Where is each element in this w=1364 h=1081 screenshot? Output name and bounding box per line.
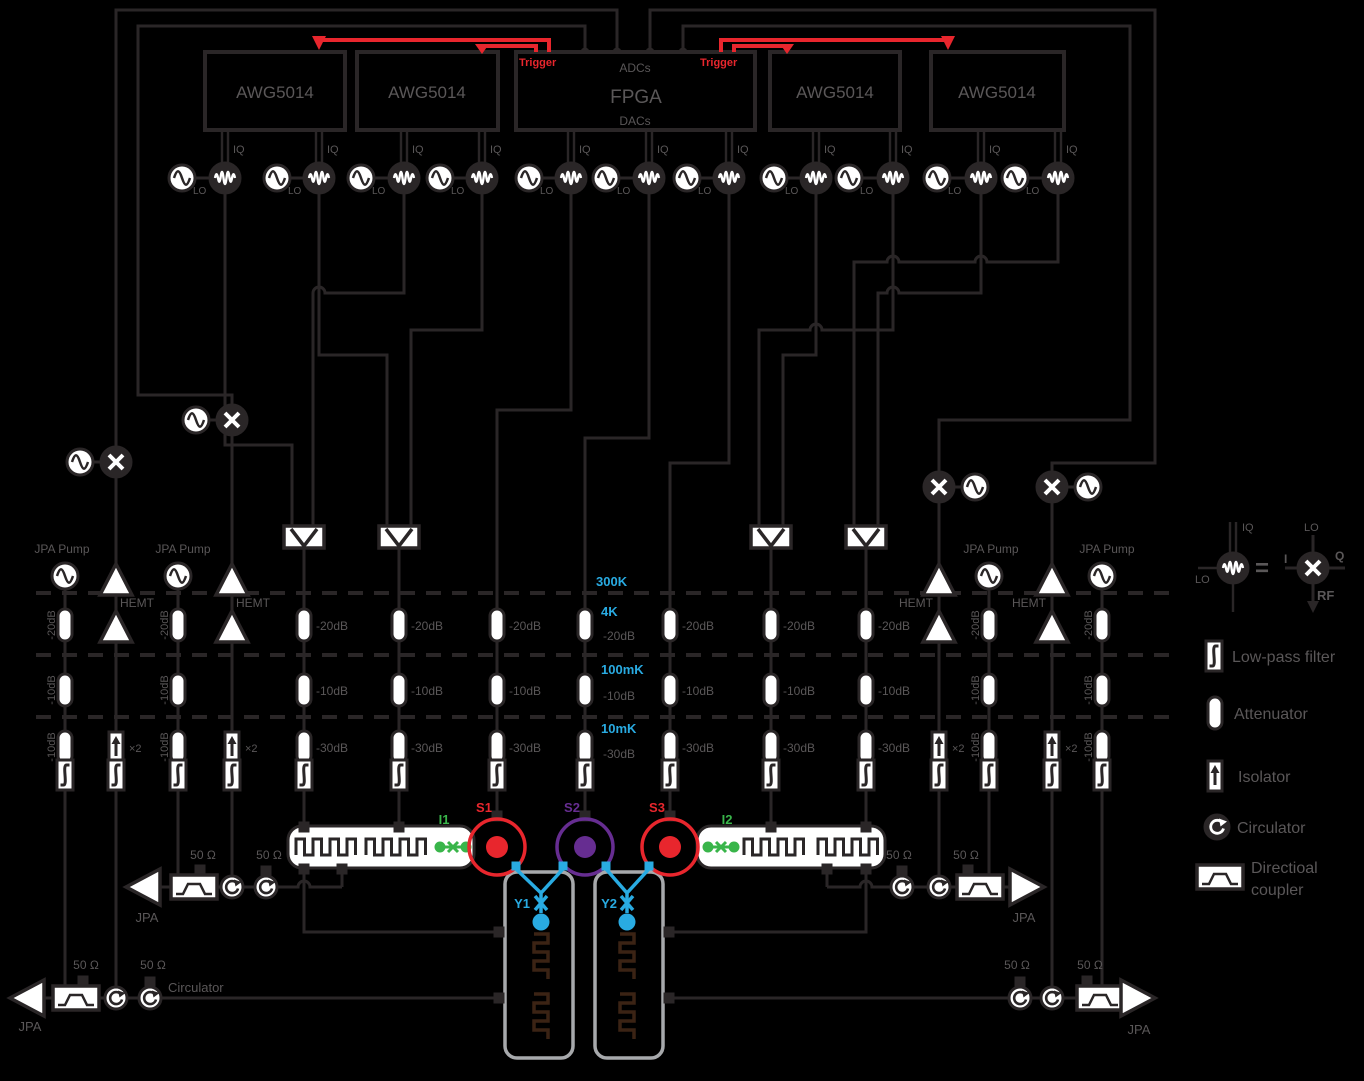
chip-pad	[337, 864, 348, 875]
coupler-upper-right	[957, 875, 1003, 899]
x2-label: ×2	[952, 743, 965, 755]
coupler-lower-right	[1077, 986, 1123, 1010]
low-pass-filter	[1044, 760, 1060, 790]
db-label: -10dB	[159, 732, 171, 761]
termination-pad	[78, 976, 89, 987]
jpa-lower-right	[1121, 980, 1155, 1016]
db-label: -20dB	[603, 629, 635, 643]
rt-amplifier-1	[100, 564, 132, 595]
flux-filter-1a	[534, 934, 548, 979]
chip-pad	[861, 822, 872, 833]
attenuator	[578, 731, 592, 763]
jpa-label: JPA	[1128, 1022, 1151, 1037]
iq-mixer-10	[966, 163, 996, 193]
termination-pad	[963, 865, 974, 876]
lo-source-3	[348, 165, 374, 191]
iq-label: IQ	[824, 144, 836, 156]
attenuator	[171, 609, 185, 641]
db-label: -30dB	[316, 741, 348, 755]
readout-mixer-right-1	[924, 472, 954, 502]
lo-label: LO	[372, 186, 386, 197]
flux-filter-1b	[534, 994, 548, 1039]
attenuator	[58, 609, 72, 641]
low-pass-filter	[170, 760, 186, 790]
db-label: -30dB	[682, 741, 714, 755]
db-label: -10dB	[316, 684, 348, 698]
lo-source-8	[761, 165, 787, 191]
hemt-label: HEMT	[1012, 596, 1047, 610]
db-label: -10dB	[46, 732, 58, 761]
temp-label-100mk: 100mK	[601, 662, 644, 677]
dacs-label: DACs	[619, 114, 650, 128]
db-label: -20dB	[411, 619, 443, 633]
circulator	[221, 876, 243, 898]
legend-coupler-label-2: coupler	[1251, 882, 1304, 899]
db-label: -10dB	[46, 675, 58, 704]
attenuator	[859, 674, 873, 706]
low-pass-filter	[858, 760, 874, 790]
db-label: -10dB	[603, 689, 635, 703]
db-label: -10dB	[783, 684, 815, 698]
legend-attenuator-icon	[1208, 697, 1222, 729]
jpa-label: JPA	[19, 1019, 42, 1034]
iq-label: IQ	[989, 144, 1001, 156]
chip-pad	[299, 822, 310, 833]
low-pass-filter	[662, 760, 678, 790]
coupler-i1-label: I1	[439, 812, 450, 827]
attenuator	[392, 674, 406, 706]
attenuator	[1095, 731, 1109, 763]
isolator-4	[1045, 732, 1059, 762]
adcs-label: ADCs	[619, 61, 650, 75]
low-pass-filter	[108, 760, 124, 790]
readout-mixer-left-1	[101, 447, 131, 477]
chip-pad	[822, 864, 833, 875]
termination-label: 50 Ω	[73, 958, 99, 972]
lo-label: LO	[288, 186, 302, 197]
db-label: -20dB	[509, 619, 541, 633]
iq-label: IQ	[901, 144, 913, 156]
low-pass-filter	[1094, 760, 1110, 790]
low-pass-filter	[577, 760, 593, 790]
db-label: -10dB	[970, 675, 982, 704]
x2-label: ×2	[245, 743, 258, 755]
jpa-upper-left	[126, 869, 160, 905]
low-pass-filter	[224, 760, 240, 790]
iq-mixer-5	[556, 163, 586, 193]
readout-mixer-right-2	[1037, 472, 1067, 502]
jpa-pump-source-2	[165, 563, 191, 589]
db-label: -20dB	[970, 610, 982, 639]
lo-source-11	[1002, 165, 1028, 191]
jpa-label: JPA	[1013, 910, 1036, 925]
lo-label: LO	[617, 186, 631, 197]
isolator-3	[932, 732, 946, 762]
iq-label: IQ	[412, 144, 424, 156]
lo-label: LO	[1026, 186, 1040, 197]
legend-circulator-label: Circulator	[1237, 820, 1306, 837]
iq-port-labels: IQ IQ IQ IQ IQ IQ IQ IQ IQ IQ IQ	[233, 144, 1078, 156]
temp-label-10mk: 10mK	[601, 721, 637, 736]
db-label: -30dB	[509, 741, 541, 755]
db-label: -10dB	[682, 684, 714, 698]
attenuator	[490, 674, 504, 706]
lo-source-6	[593, 165, 619, 191]
iq-mixer-4	[467, 163, 497, 193]
lo-label: LO	[948, 186, 962, 197]
termination-pad	[261, 866, 272, 877]
termination-pad	[145, 977, 156, 988]
attenuator	[578, 609, 592, 641]
x2-label: ×2	[1065, 743, 1078, 755]
db-label: -10dB	[509, 684, 541, 698]
lo-label: LO	[193, 186, 207, 197]
jpa-pump-label-3: JPA Pump	[963, 542, 1018, 556]
low-pass-filter	[489, 760, 505, 790]
circulator	[105, 987, 127, 1009]
termination-label: 50 Ω	[140, 958, 166, 972]
diagram-canvas: AWG5014 AWG5014 FPGA ADCs DACs AWG5014 A…	[0, 0, 1364, 1081]
circulator	[891, 876, 913, 898]
attenuator	[58, 674, 72, 706]
iq-label: IQ	[737, 144, 749, 156]
db-label: -30dB	[603, 747, 635, 761]
jpa-pump-source-1	[52, 563, 78, 589]
low-pass-filter	[296, 760, 312, 790]
coupler-i2-label: I2	[722, 812, 733, 827]
db-label: -10dB	[1083, 732, 1095, 761]
awg-4-label: AWG5014	[958, 83, 1036, 102]
jpa-pump-label-2: JPA Pump	[155, 542, 210, 556]
low-pass-filter	[391, 760, 407, 790]
lo-source-1	[169, 165, 195, 191]
chip-pad	[394, 822, 405, 833]
trigger-label-left: Trigger	[519, 57, 557, 69]
low-pass-filter	[57, 760, 73, 790]
legend-equals: =	[1255, 555, 1269, 582]
lo-source-5	[516, 165, 542, 191]
db-label: -10dB	[1083, 675, 1095, 704]
iq-mixer-7	[714, 163, 744, 193]
jpa-pump-source-3	[976, 563, 1002, 589]
qubit-s3-label: S3	[649, 800, 665, 815]
jpa-pump-label-1: JPA Pump	[34, 542, 89, 556]
hemt-label: HEMT	[236, 596, 271, 610]
combiner-right-2	[846, 526, 886, 548]
db-label: -20dB	[682, 619, 714, 633]
attenuator	[297, 731, 311, 763]
rt-amplifier-4	[1036, 564, 1068, 595]
lo-label: LO	[540, 186, 554, 197]
coupler-y2-label: Y2	[601, 896, 617, 911]
termination-pad	[195, 865, 206, 876]
legend-coupler-icon	[1197, 865, 1243, 889]
readout-lo-left-2	[183, 407, 209, 433]
attenuator	[578, 674, 592, 706]
db-label: -20dB	[316, 619, 348, 633]
hemt-amplifier-4	[1036, 611, 1068, 642]
isolator-1	[109, 732, 123, 762]
db-label: -20dB	[878, 619, 910, 633]
isolator-2	[225, 732, 239, 762]
combiner-right-1	[751, 526, 791, 548]
rt-amplifier-3	[923, 564, 955, 595]
circulator	[928, 876, 950, 898]
attenuator	[297, 609, 311, 641]
legend-coupler-label-1: Directioal	[1251, 860, 1318, 877]
attenuator	[859, 731, 873, 763]
legend-isolator-label: Isolator	[1238, 769, 1291, 786]
attenuator	[982, 609, 996, 641]
hemt-amplifier-1	[100, 611, 132, 642]
attenuator	[982, 731, 996, 763]
db-label: -10dB	[159, 675, 171, 704]
flux-filter-2a	[620, 934, 634, 979]
attenuator	[764, 731, 778, 763]
hemt-amplifier-2	[216, 611, 248, 642]
qubit-s2-label: S2	[564, 800, 580, 815]
coupler-upper-left	[171, 875, 217, 899]
legend-mixer-icon	[1298, 553, 1328, 583]
iq-mixer-11	[1043, 163, 1073, 193]
coupler-lower-left	[53, 986, 99, 1010]
attenuator	[171, 674, 185, 706]
chip-pad	[299, 864, 310, 875]
readout-lo-right-1	[962, 474, 988, 500]
jpa-pump-source-4	[1089, 563, 1115, 589]
wire-drive-lines	[225, 193, 1058, 816]
sample-region	[288, 811, 885, 1059]
attenuator	[297, 674, 311, 706]
wire-iq-stubs	[222, 130, 1061, 163]
jpa-upper-right	[1010, 869, 1044, 905]
termination-pad	[1082, 976, 1093, 987]
readout-mixer-left-2	[217, 405, 247, 435]
lo-label: LO	[698, 186, 712, 197]
trigger-label-right: Trigger	[700, 57, 738, 69]
attenuator	[392, 731, 406, 763]
attenuator	[392, 609, 406, 641]
db-label: -30dB	[411, 741, 443, 755]
termination-pad	[1015, 977, 1026, 988]
legend-rf-label: RF	[1317, 588, 1334, 603]
iq-label: IQ	[327, 144, 339, 156]
iq-mixer-9	[878, 163, 908, 193]
readout-lo-right-2	[1075, 474, 1101, 500]
components-layer	[10, 48, 1155, 1017]
iq-label: IQ	[1066, 144, 1078, 156]
low-pass-filter	[981, 760, 997, 790]
db-label: -20dB	[159, 610, 171, 639]
low-pass-filter	[763, 760, 779, 790]
attenuator	[1095, 674, 1109, 706]
lo-label: LO	[860, 186, 874, 197]
attenuator	[663, 674, 677, 706]
flux-filter-2b	[620, 994, 634, 1039]
attenuator	[859, 609, 873, 641]
legend-lo-label: LO	[1195, 574, 1210, 586]
x2-label: ×2	[129, 743, 142, 755]
iq-mixer-3	[389, 163, 419, 193]
db-label: -20dB	[1083, 610, 1095, 639]
coupler-y1-label: Y1	[514, 896, 530, 911]
attenuator	[1095, 609, 1109, 641]
attenuator	[764, 674, 778, 706]
attenuator	[663, 731, 677, 763]
legend-circulator-icon	[1205, 815, 1229, 839]
iq-mixer-6	[634, 163, 664, 193]
legend-lpf-label: Low-pass filter	[1232, 649, 1336, 666]
legend-attenuator-label: Attenuator	[1234, 706, 1309, 723]
awg-1-label: AWG5014	[236, 83, 314, 102]
hemt-label: HEMT	[120, 596, 155, 610]
lo-label: LO	[451, 186, 465, 197]
iq-mixer-1	[210, 163, 240, 193]
lo-source-2	[264, 165, 290, 191]
legend-lo2-label: LO	[1304, 522, 1319, 534]
attenuator	[764, 609, 778, 641]
attenuator	[490, 731, 504, 763]
circulator	[139, 987, 161, 1009]
iq-label: IQ	[657, 144, 669, 156]
attenuator	[171, 731, 185, 763]
db-label: -20dB	[783, 619, 815, 633]
db-label: -10dB	[878, 684, 910, 698]
lo-source-7	[674, 165, 700, 191]
db-label: -30dB	[878, 741, 910, 755]
lo-source-10	[924, 165, 950, 191]
flux-box-pad	[664, 993, 675, 1004]
circulator	[1009, 987, 1031, 1009]
temp-label-4k: 4K	[601, 604, 618, 619]
iq-label: IQ	[490, 144, 502, 156]
db-label: -10dB	[411, 684, 443, 698]
jpa-lower-left	[10, 980, 44, 1016]
qubit-s1-label: S1	[476, 800, 492, 815]
attenuator	[490, 609, 504, 641]
iq-mixer-8	[801, 163, 831, 193]
lo-source-4	[427, 165, 453, 191]
readout-lo-left-1	[67, 449, 93, 475]
termination-label: 50 Ω	[190, 848, 216, 862]
attenuator	[982, 674, 996, 706]
attenuator	[58, 731, 72, 763]
hemt-label: HEMT	[899, 596, 934, 610]
legend-iq-mixer-icon	[1218, 553, 1248, 583]
jpa-pump-label-4: JPA Pump	[1079, 542, 1134, 556]
lo-label: LO	[785, 186, 799, 197]
termination-label: 50 Ω	[256, 848, 282, 862]
flux-box-pad	[494, 993, 505, 1004]
flux-box-pad	[494, 927, 505, 938]
circulator	[1041, 987, 1063, 1009]
legend-i-label: I	[1284, 552, 1287, 566]
termination-pad	[897, 866, 908, 877]
legend-lpf-icon	[1206, 641, 1222, 671]
temp-label-300k: 300K	[596, 574, 628, 589]
termination-label: 50 Ω	[886, 848, 912, 862]
jpa-label: JPA	[136, 910, 159, 925]
legend-isolator-icon	[1208, 761, 1222, 791]
termination-label: 50 Ω	[953, 848, 979, 862]
attenuator	[663, 609, 677, 641]
awg-2-label: AWG5014	[388, 83, 466, 102]
circulator-label: Circulator	[168, 980, 224, 995]
db-label: -30dB	[783, 741, 815, 755]
wiring-diagram: AWG5014 AWG5014 FPGA ADCs DACs AWG5014 A…	[0, 0, 1364, 1081]
termination-label: 50 Ω	[1004, 958, 1030, 972]
termination-label: 50 Ω	[1077, 958, 1103, 972]
db-label: -10dB	[970, 732, 982, 761]
iq-label: IQ	[233, 144, 245, 156]
chip-pad	[861, 864, 872, 875]
combiner-left-2	[379, 526, 419, 548]
combiner-left-1	[284, 526, 324, 548]
legend-q-label: Q	[1335, 549, 1344, 563]
legend-iq-label: IQ	[1242, 522, 1254, 534]
rt-amplifier-2	[216, 564, 248, 595]
chip-pad	[766, 822, 777, 833]
lo-source-9	[836, 165, 862, 191]
hemt-amplifier-3	[923, 611, 955, 642]
low-pass-filter	[931, 760, 947, 790]
iq-mixer-2	[304, 163, 334, 193]
fpga-label: FPGA	[610, 87, 662, 108]
iq-label: IQ	[579, 144, 591, 156]
awg-3-label: AWG5014	[796, 83, 874, 102]
db-label: -20dB	[46, 610, 58, 639]
circulator	[255, 876, 277, 898]
flux-box-pad	[664, 927, 675, 938]
